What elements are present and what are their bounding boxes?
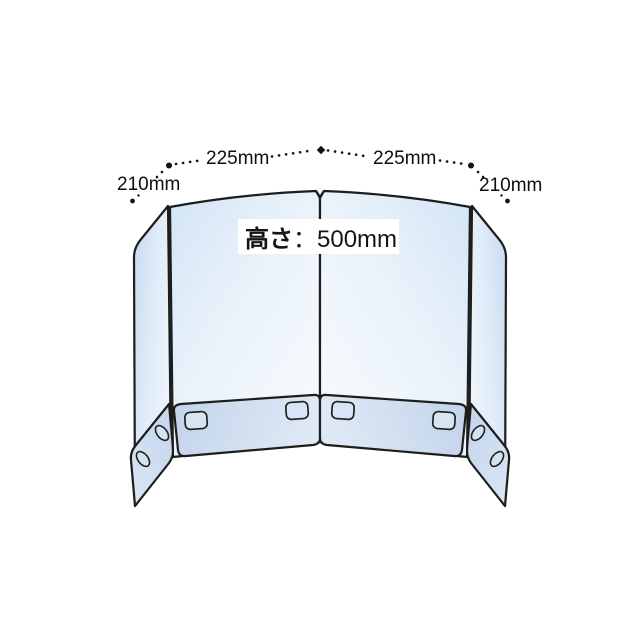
height-dimension-label: 高さ：500mm bbox=[238, 219, 399, 254]
tab-slot bbox=[184, 411, 207, 429]
height-label-value: ：500mm bbox=[293, 219, 397, 254]
tab-slot bbox=[432, 411, 455, 429]
product-image-canvas: 225mm 225mm 210mm 210mm 高さ：500mm bbox=[0, 0, 640, 640]
dimension-label-right-center-width: 225mm bbox=[373, 149, 436, 168]
dimension-label-left-center-width: 225mm bbox=[206, 149, 269, 168]
tab-slot bbox=[331, 401, 354, 419]
dimension-label-right-wing-width: 210mm bbox=[479, 176, 542, 195]
partition-product-illustration bbox=[0, 0, 640, 640]
dimension-leader-dots bbox=[130, 146, 510, 204]
dimension-label-left-wing-width: 210mm bbox=[117, 175, 180, 194]
height-label-prefix: 高さ bbox=[245, 219, 293, 254]
tab-slot bbox=[285, 401, 308, 419]
